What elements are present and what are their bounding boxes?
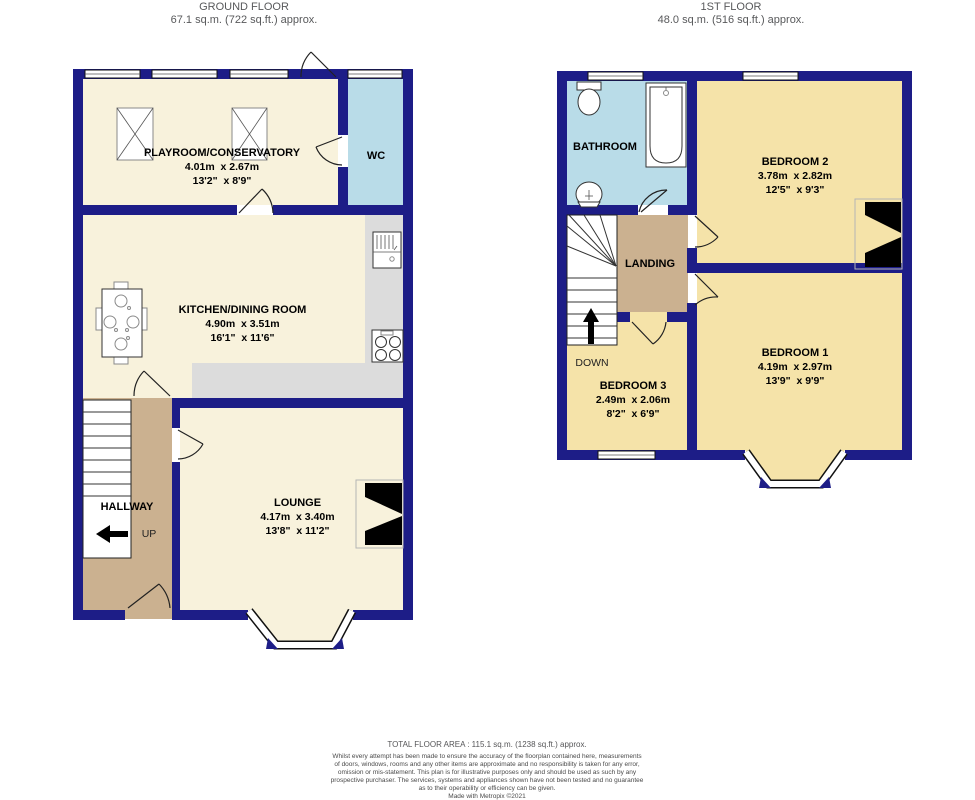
disclaimer: Whilst every attempt has been made to en… (237, 753, 737, 800)
playroom-label: PLAYROOM/CONSERVATORY 4.01m x 2.67m 13'2… (122, 146, 322, 188)
wc-area (348, 79, 403, 205)
bedroom1-label: BEDROOM 1 4.19m x 2.97m 13'9" x 9'9" (695, 346, 895, 388)
window (348, 70, 402, 78)
ground-floor-title: GROUND FLOOR (94, 1, 394, 14)
room-name: LOUNGE (195, 496, 400, 510)
room-name: KITCHEN/DINING ROOM (140, 303, 345, 317)
disclaimer-line: prospective purchaser. The services, sys… (237, 777, 737, 785)
bedroom3-door-threshold (630, 312, 667, 322)
room-dims-metric: 2.49m x 2.06m (533, 393, 733, 407)
first-floor-subtitle: 48.0 sq.m. (516 sq.ft.) approx. (581, 14, 881, 27)
window (588, 72, 643, 80)
room-dims-imperial: 13'8" x 11'2" (195, 524, 400, 538)
room-dims-imperial: 13'9" x 9'9" (695, 374, 895, 388)
room-name: PLAYROOM/CONSERVATORY (122, 146, 322, 160)
first-floor-title: 1ST FLOOR (581, 1, 881, 14)
disclaimer-line: of doors, windows, rooms and any other i… (237, 761, 737, 769)
kitchen-label: KITCHEN/DINING ROOM 4.90m x 3.51m 16'1" … (140, 303, 345, 345)
room-dims-metric: 4.17m x 3.40m (195, 510, 400, 524)
disclaimer-line: as to their operability or efficiency ca… (237, 785, 737, 793)
window (743, 72, 798, 80)
room-name: BEDROOM 2 (695, 155, 895, 169)
window (598, 451, 655, 459)
room-dims-metric: 3.78m x 2.82m (695, 169, 895, 183)
hob-icon (372, 330, 403, 362)
room-dims-metric: 4.01m x 2.67m (122, 160, 322, 174)
landing-label: LANDING (604, 258, 696, 271)
window (85, 70, 140, 78)
lounge-label: LOUNGE 4.17m x 3.40m 13'8" x 11'2" (195, 496, 400, 538)
hallway-label: HALLWAY (77, 501, 177, 514)
room-dims-metric: 4.19m x 2.97m (695, 360, 895, 374)
kitchen-counter-bottom (192, 363, 403, 398)
fridge-icon (373, 232, 401, 268)
room-dims-imperial: 16'1" x 11'6" (140, 331, 345, 345)
toilet-icon (577, 82, 601, 115)
ground-floor-plan (60, 45, 430, 665)
total-floor-area: TOTAL FLOOR AREA : 115.1 sq.m. (1238 sq.… (287, 739, 687, 750)
bedroom2-label: BEDROOM 2 3.78m x 2.82m 12'5" x 9'3" (695, 155, 895, 197)
room-dims-imperial: 12'5" x 9'3" (695, 183, 895, 197)
first-floor-plan (545, 45, 925, 500)
front-door-threshold (125, 610, 172, 619)
sink-icon (576, 182, 602, 207)
room-dims-imperial: 8'2" x 6'9" (533, 407, 733, 421)
metropix-credit: Made with Metropix ©2021 (237, 793, 737, 800)
ground-floor-title-block: GROUND FLOOR 67.1 sq.m. (722 sq.ft.) app… (94, 1, 394, 27)
up-label: UP (124, 528, 174, 541)
down-label: DOWN (566, 357, 618, 370)
wc-label: WC (346, 150, 406, 163)
disclaimer-line: omission or mis-statement. This plan is … (237, 769, 737, 777)
disclaimer-line: Whilst every attempt has been made to en… (237, 753, 737, 761)
stairs-icon (567, 215, 617, 345)
window (152, 70, 217, 78)
bathroom-label: BATHROOM (561, 141, 649, 154)
room-dims-imperial: 13'2" x 8'9" (122, 174, 322, 188)
first-floor-title-block: 1ST FLOOR 48.0 sq.m. (516 sq.ft.) approx… (581, 1, 881, 27)
floorplan-page: GROUND FLOOR 67.1 sq.m. (722 sq.ft.) app… (0, 0, 975, 800)
ground-floor-subtitle: 67.1 sq.m. (722 sq.ft.) approx. (94, 14, 394, 27)
room-dims-metric: 4.90m x 3.51m (140, 317, 345, 331)
room-name: BEDROOM 1 (695, 346, 895, 360)
window (230, 70, 288, 78)
bathtub-icon (646, 83, 686, 167)
